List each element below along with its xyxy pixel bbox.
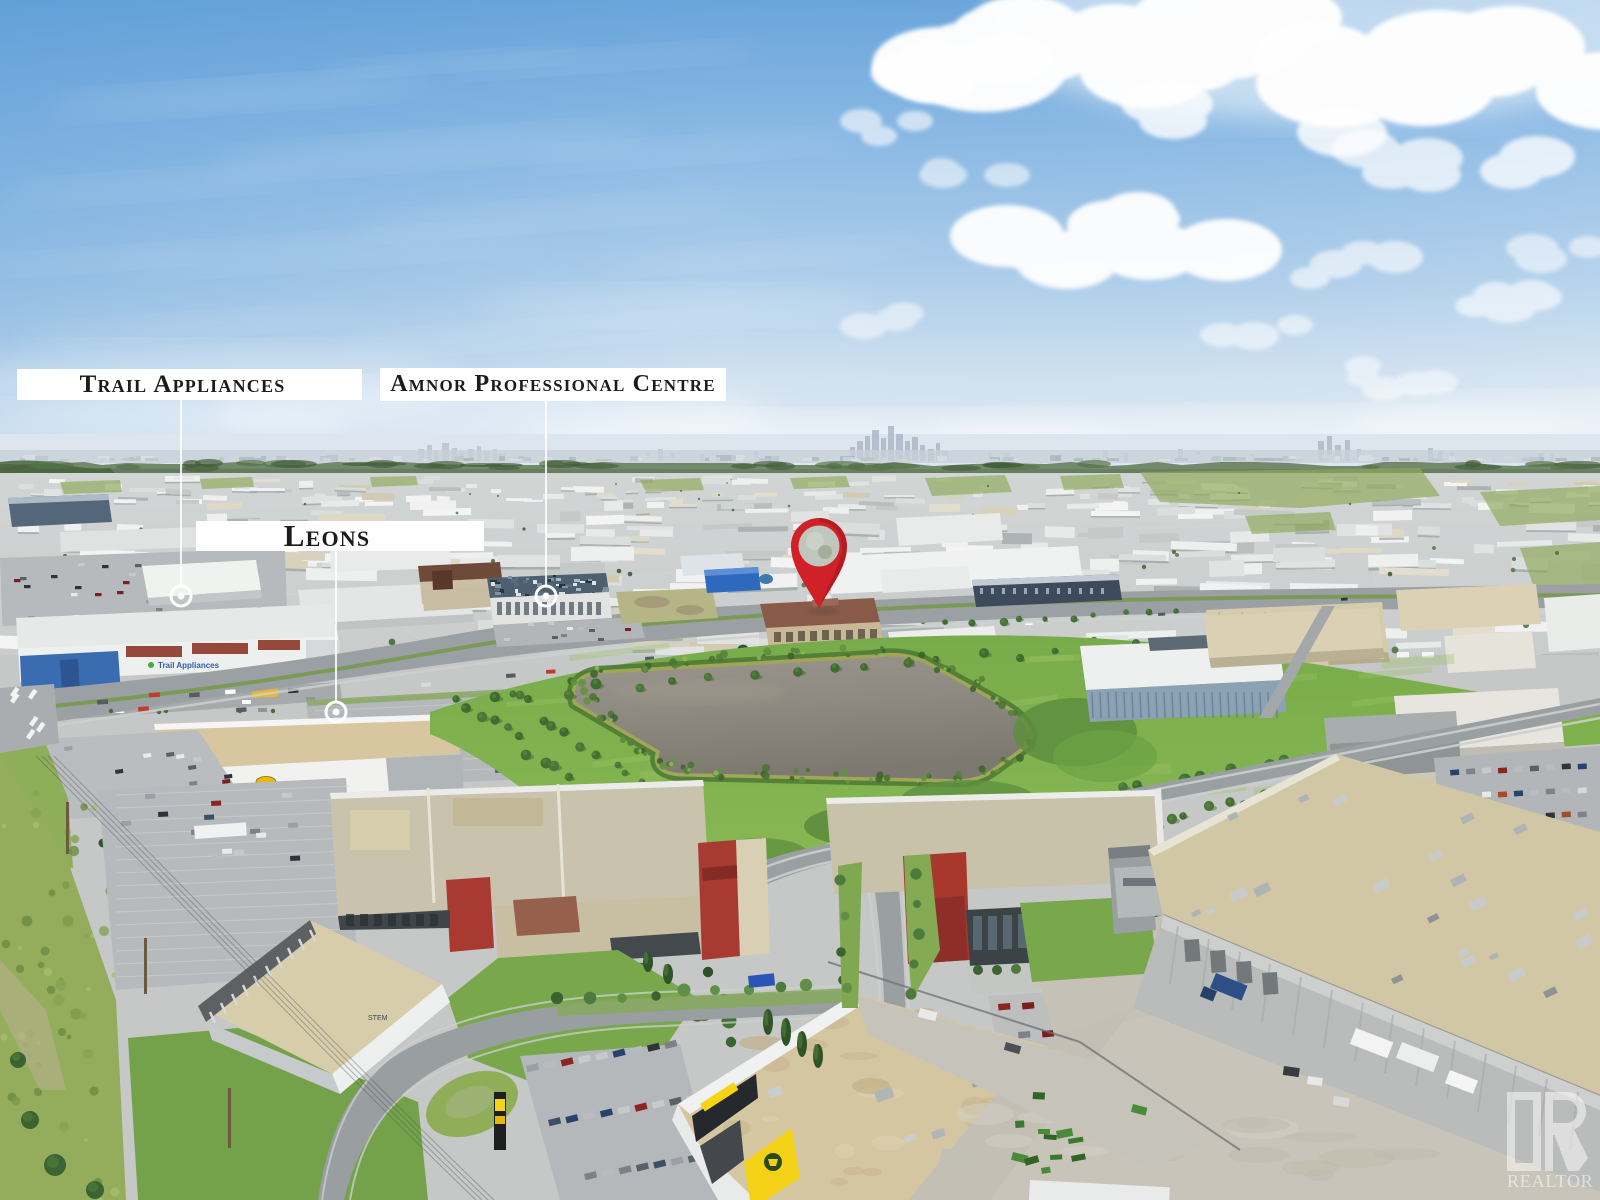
svg-text:REALTOR: REALTOR bbox=[1507, 1171, 1594, 1191]
svg-text:Trail Appliances: Trail Appliances bbox=[158, 661, 220, 670]
svg-text:STEM: STEM bbox=[368, 1015, 388, 1022]
